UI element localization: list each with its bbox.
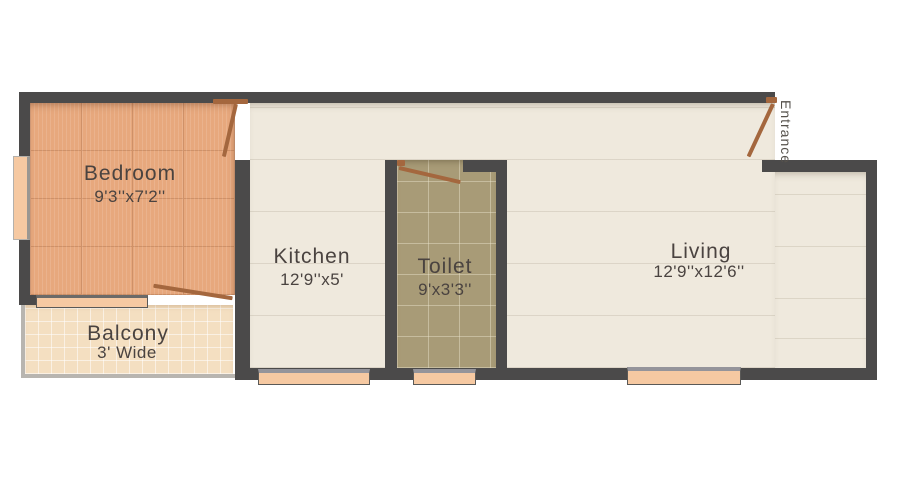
wall-bedroom-kitchen bbox=[235, 160, 250, 380]
kitchen-label: Kitchen bbox=[273, 245, 350, 269]
bedroom-dims: 9'3''x7'2'' bbox=[94, 187, 165, 207]
kitchen-living-floor bbox=[250, 103, 775, 368]
wall-top bbox=[19, 92, 775, 103]
balcony-outer-wall-left bbox=[21, 303, 25, 378]
toilet-door-hinge bbox=[397, 160, 405, 166]
toilet-dims: 9'x3'3'' bbox=[418, 280, 472, 300]
living-floor-right bbox=[775, 172, 866, 368]
wall-right bbox=[866, 160, 877, 380]
kitchen-window bbox=[258, 369, 370, 385]
entrance-door-hinge bbox=[766, 97, 777, 103]
wall-toilet-top-stub bbox=[463, 160, 507, 172]
bedroom-side-window bbox=[13, 156, 30, 240]
bedroom-door-header bbox=[213, 99, 248, 104]
toilet-label: Toilet bbox=[417, 255, 472, 279]
living-label: Living bbox=[671, 240, 732, 264]
bedroom-label: Bedroom bbox=[84, 162, 176, 186]
wall-toilet-left bbox=[385, 160, 397, 380]
kitchen-dims: 12'9''x5' bbox=[280, 270, 344, 290]
living-dims: 12'9''x12'6'' bbox=[653, 262, 744, 282]
wall-toilet-right bbox=[496, 160, 507, 380]
toilet-window bbox=[413, 369, 476, 385]
floor-plan: Bedroom 9'3''x7'2'' Balcony 3' Wide Kitc… bbox=[0, 0, 900, 500]
living-window bbox=[627, 367, 741, 385]
balcony-door-sill-window bbox=[36, 295, 148, 308]
entrance-label: Entrance bbox=[778, 100, 794, 164]
balcony-dims: 3' Wide bbox=[97, 343, 157, 363]
balcony-outer-wall-bottom bbox=[21, 374, 235, 378]
